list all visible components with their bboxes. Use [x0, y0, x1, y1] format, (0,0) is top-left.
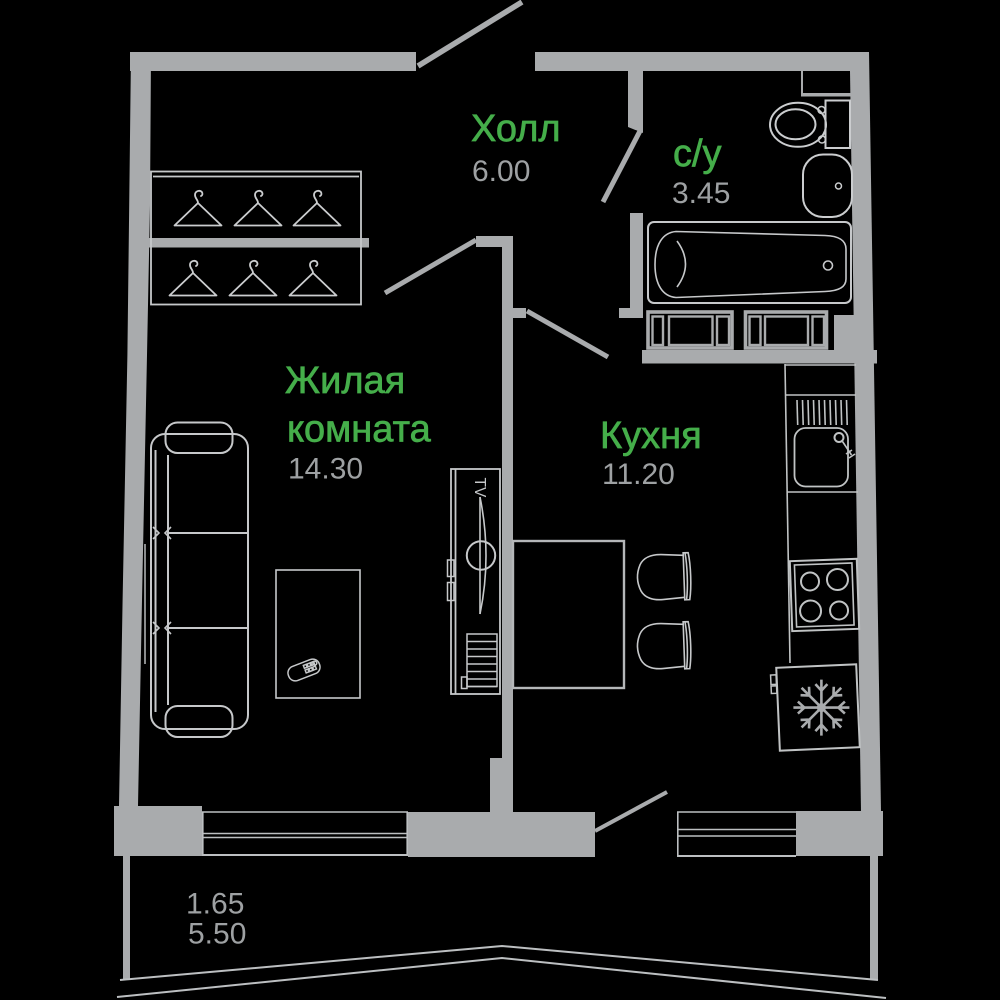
svg-text:Холл: Холл: [471, 108, 561, 150]
svg-text:с/у: с/у: [673, 133, 722, 175]
svg-text:комната: комната: [287, 409, 432, 451]
svg-text:1.65: 1.65: [186, 888, 244, 921]
svg-text:6.00: 6.00: [472, 155, 530, 188]
svg-text:3.45: 3.45: [672, 177, 730, 210]
svg-text:TV: TV: [471, 478, 488, 498]
svg-text:Кухня: Кухня: [600, 415, 702, 457]
svg-text:Жилая: Жилая: [285, 360, 405, 402]
svg-text:5.50: 5.50: [188, 918, 246, 951]
svg-text:11.20: 11.20: [602, 458, 675, 491]
svg-text:14.30: 14.30: [288, 453, 363, 486]
